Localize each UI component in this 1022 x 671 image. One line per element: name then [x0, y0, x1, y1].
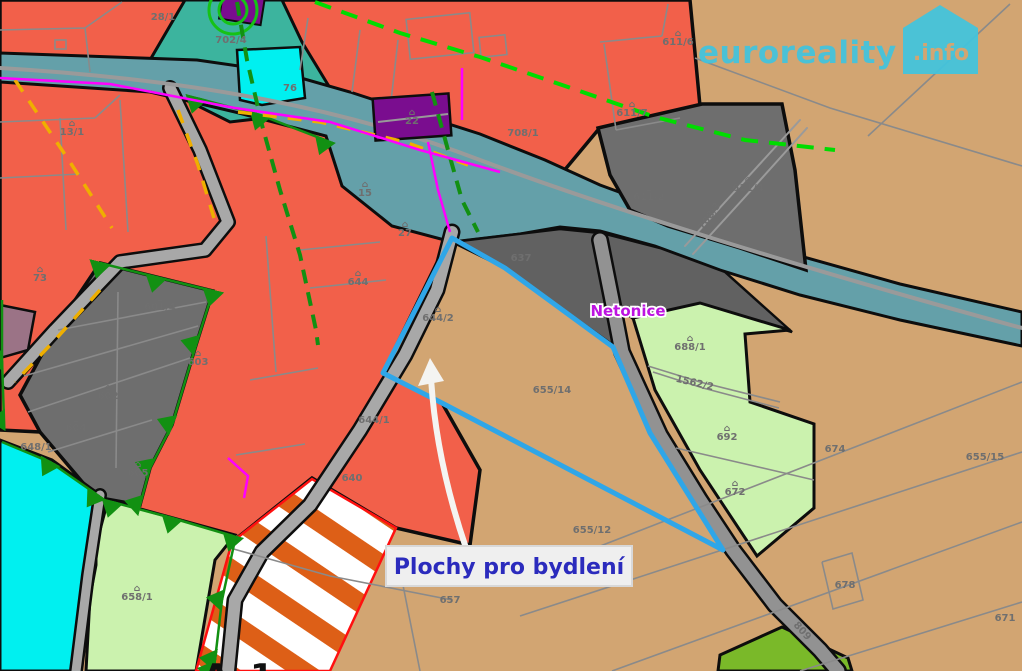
parcel-number: 13/1	[60, 127, 85, 138]
parcel-number: 604	[66, 423, 87, 434]
parcel-label: 76	[283, 83, 297, 94]
parcel-label: 702/4	[215, 35, 247, 46]
parcel-number: 657	[440, 595, 461, 606]
parcel-number: 76	[283, 83, 297, 94]
parcel-label: 708/1	[507, 128, 539, 139]
parcel-number: 655/15	[966, 452, 1004, 463]
parcel-number: 611/7	[616, 108, 648, 119]
parcel-number: 678	[835, 580, 856, 591]
parcel-number: 708/1	[507, 128, 539, 139]
watermark-tld-text: .info	[913, 41, 969, 66]
parcel-label: 640	[342, 473, 363, 484]
parcel-number: 658/1	[121, 592, 153, 603]
area-label-text: Plochy pro bydlení	[394, 555, 626, 580]
parcel-number: 602	[98, 391, 119, 402]
parcel-label: 28/1	[151, 12, 176, 23]
parcel-label: 655/12	[573, 525, 611, 536]
parcel-number: 22	[405, 116, 419, 127]
parcel-number: 73	[33, 273, 47, 284]
parcel-number: 15	[358, 188, 372, 199]
parcel-number: 27	[398, 228, 412, 239]
zone-code-a: A	[203, 657, 230, 671]
parcel-number: 644/1	[358, 415, 390, 426]
parcel-number: 688/1	[674, 342, 706, 353]
parcel-number: 655/12	[573, 525, 611, 536]
parcel-label: 674	[825, 444, 846, 455]
parcel-label: 644/1	[358, 415, 390, 426]
parcel-label: 637	[511, 253, 532, 264]
parcel-number: 672	[725, 487, 746, 498]
parcel-number: 640	[342, 473, 363, 484]
parcel-label: 671	[995, 613, 1016, 624]
parcel-number: 611/2	[633, 192, 665, 203]
pointer-arrow-head	[418, 358, 444, 386]
parcel-number: 655/14	[533, 385, 571, 396]
parcel-number: 674	[825, 444, 846, 455]
parcel-number: 611/6	[662, 37, 694, 48]
parcel-label: 657	[440, 595, 461, 606]
parcel-label: 678	[835, 580, 856, 591]
parcel-label: 655/15	[966, 452, 1004, 463]
village-label: Netonice	[590, 302, 665, 320]
parcel-number: 671	[995, 613, 1016, 624]
parcel-number: 702/4	[215, 35, 247, 46]
watermark-logo: euroreality .info	[698, 5, 978, 74]
parcel-number: 648/1	[20, 442, 52, 453]
parcel-number: 605	[128, 468, 149, 479]
map-canvas: 28/1702/4⌂13/1⌂7376⌂15⌂27⌂22708/1⌂611/7⌂…	[0, 0, 1022, 671]
parcel-number: 644	[348, 277, 369, 288]
watermark-brand-text: euroreality	[698, 35, 897, 71]
zoning-map: 28/1702/4⌂13/1⌂7376⌂15⌂27⌂22708/1⌂611/7⌂…	[0, 0, 1022, 671]
parcel-number: 611/4	[732, 183, 764, 194]
parcel-label: 648/1	[20, 442, 52, 453]
parcel-label: 655/14	[533, 385, 571, 396]
parcel-number: 28/1	[151, 12, 176, 23]
parcel-number: 644/2	[422, 313, 454, 324]
parcel-number: 603	[188, 357, 209, 368]
parcel-number: 601/4	[144, 302, 176, 313]
parcel-number: 692	[717, 432, 738, 443]
zone-code-1: 1	[250, 657, 274, 671]
parcel-number: 637	[511, 253, 532, 264]
